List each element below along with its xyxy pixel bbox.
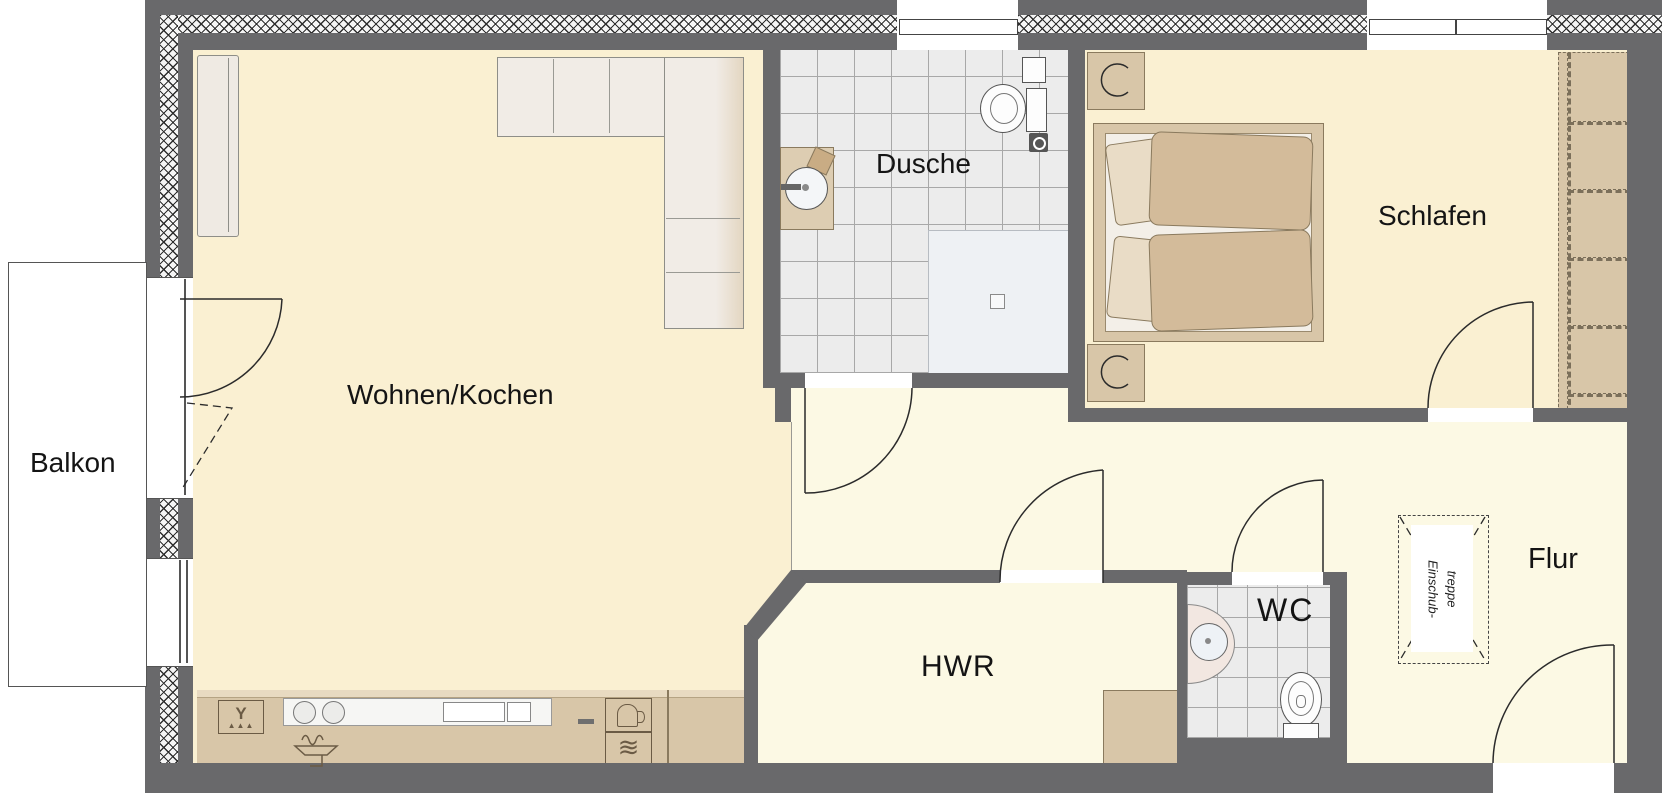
label-schlafen: Schlafen [1378,200,1487,232]
kitchen-counter-divider [667,690,669,763]
label-balkon: Balkon [30,447,116,479]
doorway-hwr [1000,570,1103,583]
doorway-dusche [805,373,912,388]
sofa-chaise [664,57,744,329]
label-wohnen: Wohnen/Kochen [347,379,554,411]
wall-passage-stub [775,388,791,422]
attic-stairs-label: treppe Einschub- [1411,525,1473,652]
attic-stairs-label-line1: Einschub- [1423,560,1443,618]
wardrobe-shelf-line [1568,325,1631,329]
window-top-schlafen-frame [1369,19,1547,35]
label-wc: WC [1257,592,1314,629]
wall-dusche-schlafen [1068,50,1085,422]
wardrobe-shelf-line [1568,393,1631,397]
dishwasher-drops: ▲▲▲ [228,722,255,730]
cooktop-burner-icon [293,701,316,724]
sofa-cushion-line [666,272,740,273]
wall-hwr-north-right [1103,570,1187,583]
attic-stairs-label-box: treppe Einschub- [1411,525,1473,652]
doorway-wc [1232,572,1323,585]
sofa-cushion-line [609,59,610,133]
kitchen-appliance-block: ≋ [605,698,652,765]
balcony-window-frame-line [179,560,181,663]
bed-blanket [1148,229,1313,332]
sofa-cushion-line [553,59,554,133]
wardrobe-depth-line [1567,53,1571,414]
toilet-flush-panel [1022,57,1046,83]
wall-schlafen-south [1068,408,1627,422]
dishwasher-glyph: Y [235,705,246,722]
sofa-cushion-line [666,218,740,219]
wardrobe-shelf-line [1568,121,1631,125]
label-dusche: Dusche [876,148,971,180]
nightstand [1087,344,1145,402]
wall-wc-east [1330,572,1347,763]
nightstand [1087,52,1145,110]
window-top-schlafen-mullion [1455,19,1457,34]
attic-stairs-label-line2: treppe [1442,570,1462,607]
toilet-dusche-tank [1026,88,1047,132]
label-flur: Flur [1528,543,1578,576]
bed-blanket [1148,131,1313,231]
washbasin-drain-dot [802,184,809,191]
kettle-handle-icon [637,711,645,723]
oven-steam-icon: ≋ [606,732,651,762]
cooktop-burner-icon [322,701,345,724]
wardrobe-shelf-line [1568,189,1631,193]
wall-right [1627,33,1662,763]
balcony-door-frame-line [184,279,186,495]
wc-toilet-tank [1283,723,1319,739]
counter-handle [578,719,594,724]
kettle-icon [617,704,638,727]
sideboard [197,55,239,237]
wall-hwr-north-left [791,570,1000,583]
floor-plan: Y ▲▲▲ ≋ [0,0,1662,793]
dishwasher-icon: Y ▲▲▲ [218,700,264,734]
sink-basin-icon [443,702,505,722]
kitchen-counter-trim [197,690,748,698]
toilet-dusche-inner [990,93,1018,124]
wardrobe-shelf-line [1568,257,1631,261]
washbasin-faucet-icon [781,184,801,190]
wall-wc-west [1177,572,1187,753]
hwr-cabinet [1103,690,1179,765]
doorway-schlafen [1428,408,1533,422]
wc-toilet-flush [1296,695,1306,708]
wall-bottom [145,763,1662,793]
balcony-window-frame-line [186,560,188,663]
shower-drain-icon [990,294,1005,309]
wall-hwr-west [744,625,758,763]
wardrobe [1558,52,1629,412]
sideboard-front-line [228,58,229,232]
wall-dusche-west [763,50,780,388]
wall-wc-south [1177,738,1347,763]
passage-threshold-line [791,422,792,570]
label-hwr: HWR [921,650,996,684]
window-top-dusche-frame [899,19,1018,35]
entrance-door-opening [1493,763,1614,793]
sink-drainer-icon [507,702,531,722]
shower-head-dot [1033,137,1046,150]
wc-washbasin-dot [1205,638,1211,644]
